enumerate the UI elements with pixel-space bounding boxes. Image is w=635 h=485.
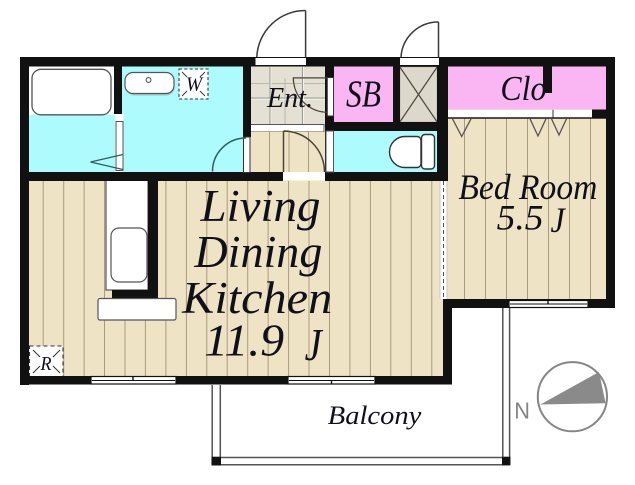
svg-text:Dining: Dining	[193, 227, 322, 277]
svg-text:W: W	[186, 74, 204, 96]
svg-text:Ent.: Ent.	[266, 83, 313, 114]
svg-text:Clo: Clo	[500, 69, 546, 108]
svg-text:11.9: 11.9	[204, 316, 284, 366]
svg-text:5.5: 5.5	[497, 198, 544, 238]
svg-text:Living: Living	[199, 181, 320, 231]
svg-text:J: J	[305, 320, 324, 370]
svg-text:R: R	[40, 353, 52, 375]
svg-text:N: N	[514, 398, 530, 424]
svg-text:Balcony: Balcony	[328, 401, 422, 430]
svg-text:J: J	[551, 200, 567, 240]
svg-text:SB: SB	[346, 74, 381, 116]
